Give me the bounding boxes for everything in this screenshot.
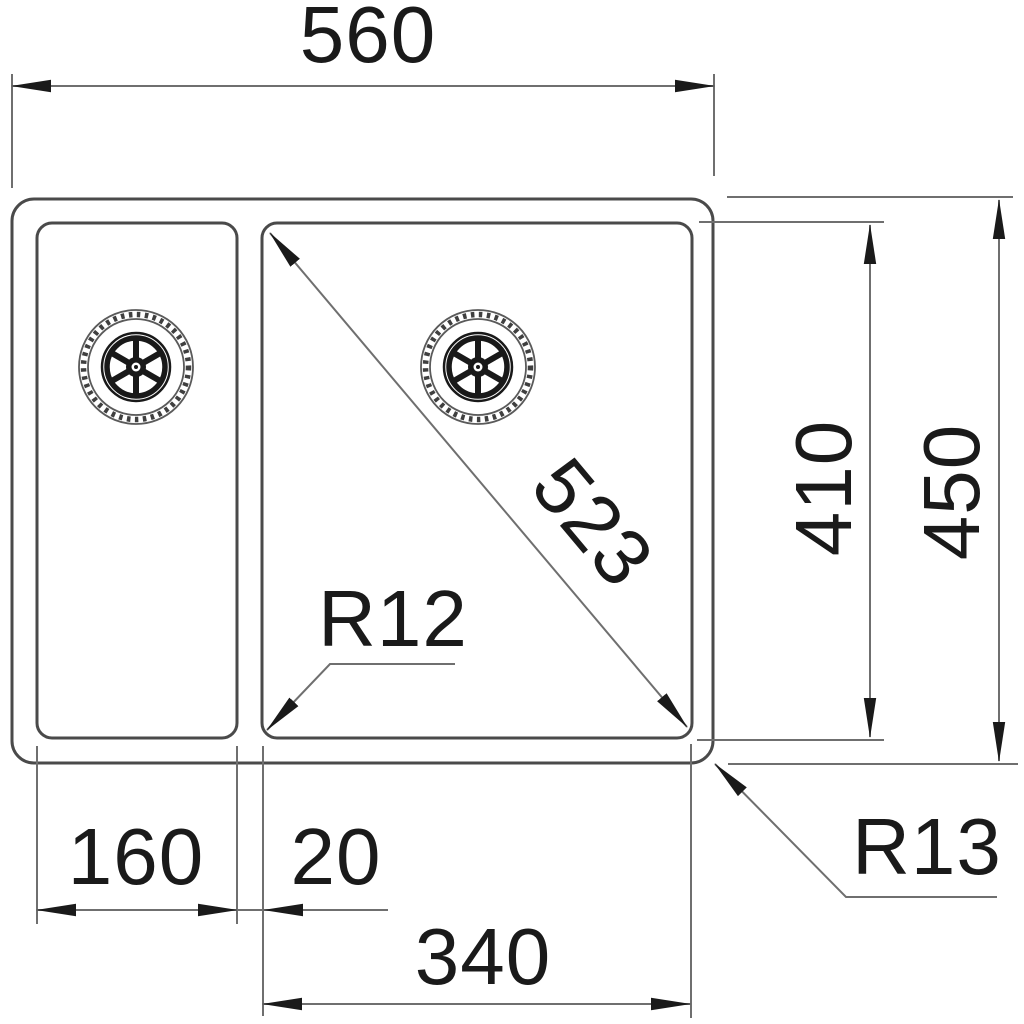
overall-depth-label: 450 bbox=[907, 424, 996, 560]
dimension-overall-width: 560 bbox=[12, 0, 714, 188]
dimension-left-bowl-width: 160 bbox=[37, 746, 237, 924]
dimension-bowl-depth: 410 bbox=[697, 222, 884, 740]
outer-radius-label: R13 bbox=[852, 802, 1002, 891]
dimension-overall-depth: 450 bbox=[727, 197, 1018, 764]
drawing-canvas: 560 410 450 523 R12 R13 bbox=[0, 0, 1024, 1024]
inner-radius-label: R12 bbox=[318, 574, 468, 663]
bowl-depth-label: 410 bbox=[779, 420, 868, 556]
left-bowl-width-label: 160 bbox=[68, 812, 204, 901]
callout-outer-radius: R13 bbox=[715, 764, 1002, 897]
left-bowl bbox=[37, 223, 237, 738]
sink-dimension-drawing: 560 410 450 523 R12 R13 bbox=[0, 0, 1024, 1024]
right-bowl-width-label: 340 bbox=[415, 912, 551, 1001]
dimension-divider-width: 20 bbox=[237, 746, 388, 1016]
overall-width-label: 560 bbox=[300, 0, 436, 79]
divider-width-label: 20 bbox=[291, 812, 382, 901]
